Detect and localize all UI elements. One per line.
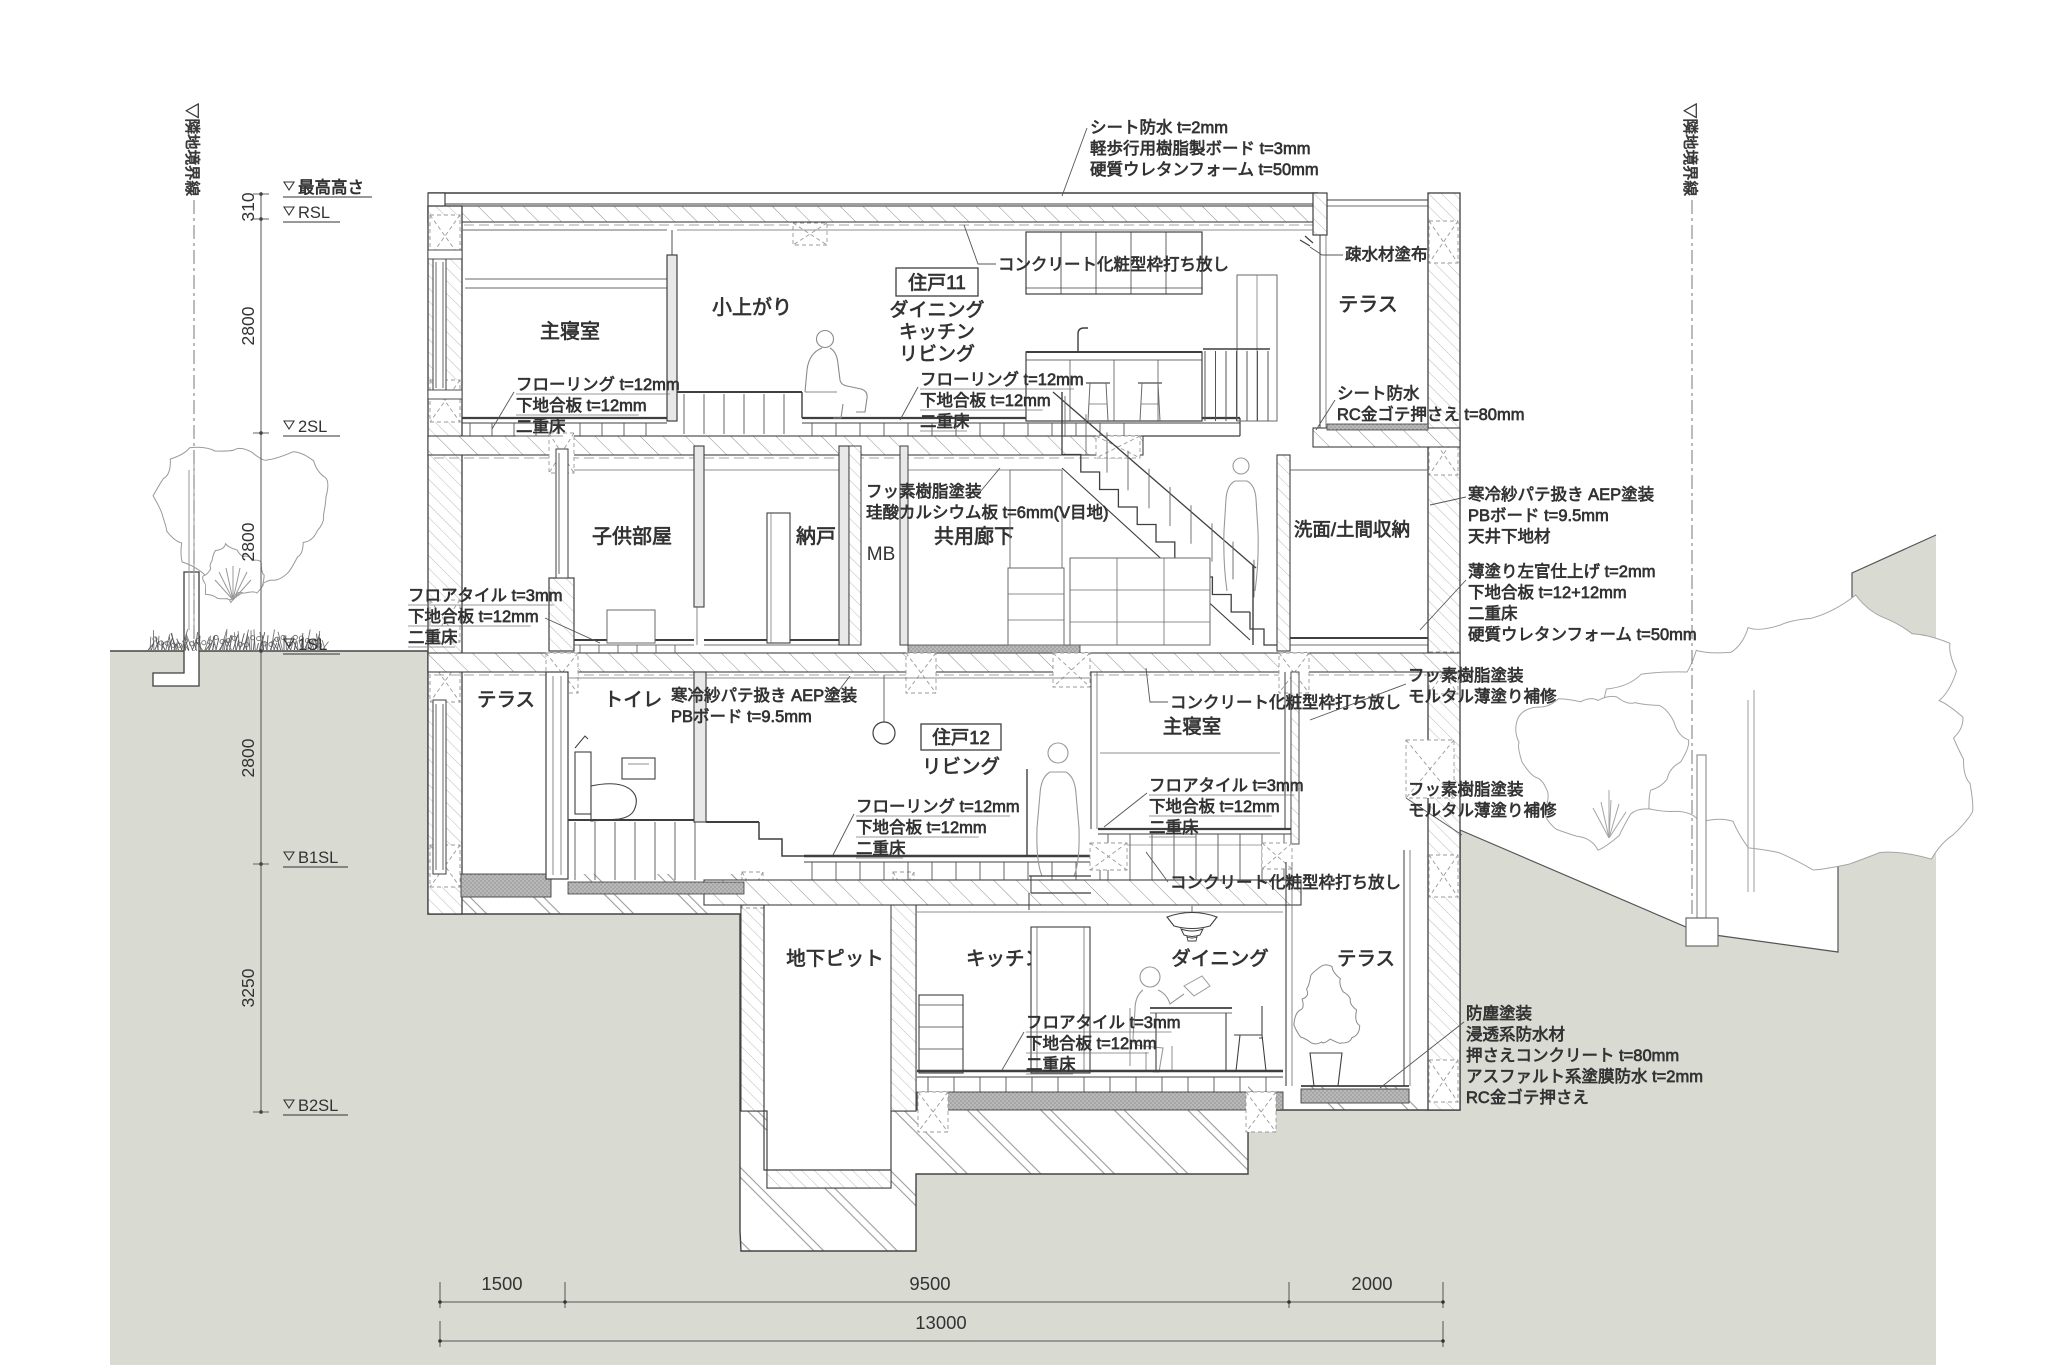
svg-text:テラス: テラス [1338, 294, 1398, 316]
svg-text:2800: 2800 [238, 306, 258, 345]
svg-text:リビング: リビング [899, 343, 975, 365]
svg-text:3250: 3250 [238, 968, 258, 1007]
svg-text:住戸11: 住戸11 [908, 272, 966, 294]
svg-text:寒冷紗パテ扱き AEP塗装: 寒冷紗パテ扱き AEP塗装 [671, 686, 857, 705]
svg-text:洗面/土間収納: 洗面/土間収納 [1294, 519, 1410, 540]
svg-text:コンクリート化粧型枠打ち放し: コンクリート化粧型枠打ち放し [1170, 693, 1401, 712]
svg-text:コンクリート化粧型枠打ち放し: コンクリート化粧型枠打ち放し [1170, 873, 1401, 892]
svg-text:下地合板 t=12mm: 下地合板 t=12mm [516, 396, 647, 415]
svg-text:子供部屋: 子供部屋 [592, 525, 672, 548]
svg-text:二重床: 二重床 [408, 628, 458, 647]
svg-text:疎水材塗布: 疎水材塗布 [1345, 245, 1428, 264]
svg-text:二重床: 二重床 [856, 839, 906, 858]
svg-text:防塵塗装: 防塵塗装 [1466, 1004, 1532, 1023]
svg-text:2000: 2000 [1351, 1273, 1392, 1294]
svg-text:リビング: リビング [922, 756, 1000, 778]
svg-text:コンクリート化粧型枠打ち放し: コンクリート化粧型枠打ち放し [998, 255, 1229, 274]
svg-text:1SL: 1SL [298, 636, 327, 654]
svg-text:2SL: 2SL [298, 418, 327, 436]
svg-text:下地合板 t=12+12mm: 下地合板 t=12+12mm [1468, 583, 1627, 602]
svg-text:RSL: RSL [298, 204, 330, 222]
svg-text:フロアタイル t=3mm: フロアタイル t=3mm [1149, 776, 1303, 795]
svg-text:珪酸カルシウム板 t=6mm(V目地): 珪酸カルシウム板 t=6mm(V目地) [866, 503, 1108, 522]
svg-text:押さえコンクリート t=80mm: 押さえコンクリート t=80mm [1466, 1046, 1679, 1065]
svg-text:フローリング t=12mm: フローリング t=12mm [856, 797, 1020, 816]
svg-text:二重床: 二重床 [516, 417, 566, 436]
svg-text:小上がり: 小上がり [712, 296, 792, 319]
svg-text:下地合板 t=12mm: 下地合板 t=12mm [408, 607, 539, 626]
svg-text:二重床: 二重床 [1026, 1055, 1076, 1074]
svg-text:下地合板 t=12mm: 下地合板 t=12mm [856, 818, 987, 837]
svg-text:浸透系防水材: 浸透系防水材 [1466, 1025, 1565, 1044]
svg-text:最高高さ: 最高高さ [298, 178, 364, 197]
svg-text:フッ素樹脂塗装: フッ素樹脂塗装 [1408, 666, 1524, 685]
svg-text:薄塗り左官仕上げ t=2mm: 薄塗り左官仕上げ t=2mm [1468, 562, 1655, 581]
svg-text:下地合板 t=12mm: 下地合板 t=12mm [920, 391, 1051, 410]
svg-text:RC金ゴテ押さえ t=80mm: RC金ゴテ押さえ t=80mm [1337, 404, 1524, 424]
svg-text:シート防水 t=2mm: シート防水 t=2mm [1090, 118, 1228, 137]
svg-text:二重床: 二重床 [1149, 818, 1199, 837]
svg-text:2800: 2800 [238, 738, 258, 777]
svg-text:下地合板 t=12mm: 下地合板 t=12mm [1149, 797, 1280, 816]
svg-text:下地合板 t=12mm: 下地合板 t=12mm [1026, 1034, 1157, 1053]
svg-text:310: 310 [238, 192, 258, 221]
svg-text:住戸12: 住戸12 [932, 727, 990, 748]
svg-text:地下ピット: 地下ピット [786, 948, 884, 970]
svg-text:寒冷紗パテ扱き AEP塗装: 寒冷紗パテ扱き AEP塗装 [1468, 485, 1654, 504]
svg-text:硬質ウレタンフォーム t=50mm: 硬質ウレタンフォーム t=50mm [1468, 625, 1697, 644]
svg-text:二重床: 二重床 [1468, 604, 1518, 623]
svg-text:13000: 13000 [915, 1312, 966, 1333]
svg-text:二重床: 二重床 [920, 412, 970, 431]
svg-text:天井下地材: 天井下地材 [1468, 527, 1551, 546]
svg-text:1500: 1500 [481, 1273, 522, 1294]
svg-text:PBボード t=9.5mm: PBボード t=9.5mm [671, 707, 812, 726]
svg-text:モルタル薄塗り補修: モルタル薄塗り補修 [1408, 801, 1557, 820]
svg-text:主寝室: 主寝室 [1163, 716, 1222, 738]
svg-text:トイレ: トイレ [604, 689, 663, 711]
svg-text:テラス: テラス [1337, 948, 1395, 970]
svg-text:軽歩行用樹脂製ボード t=3mm: 軽歩行用樹脂製ボード t=3mm [1090, 139, 1310, 158]
svg-text:ダイニング: ダイニング [889, 299, 984, 321]
svg-text:キッチン: キッチン [899, 322, 975, 343]
svg-text:RC金ゴテ押さえ: RC金ゴテ押さえ [1466, 1087, 1589, 1107]
svg-text:モルタル薄塗り補修: モルタル薄塗り補修 [1408, 687, 1557, 706]
svg-text:MB: MB [867, 544, 896, 565]
svg-text:フローリング t=12mm: フローリング t=12mm [516, 375, 680, 394]
svg-text:フッ素樹脂塗装: フッ素樹脂塗装 [866, 482, 982, 501]
svg-text:フロアタイル t=3mm: フロアタイル t=3mm [408, 586, 562, 605]
svg-text:シート防水: シート防水 [1337, 384, 1420, 403]
svg-text:テラス: テラス [477, 689, 535, 711]
svg-text:PBボード t=9.5mm: PBボード t=9.5mm [1468, 506, 1609, 525]
svg-text:ダイニング: ダイニング [1171, 948, 1269, 970]
svg-text:▽隣地境界線: ▽隣地境界線 [183, 103, 201, 197]
svg-text:2800: 2800 [238, 522, 258, 561]
svg-text:フロアタイル t=3mm: フロアタイル t=3mm [1026, 1013, 1180, 1032]
svg-text:共用廊下: 共用廊下 [934, 525, 1014, 548]
svg-text:フローリング t=12mm: フローリング t=12mm [920, 370, 1084, 389]
svg-text:▽隣地境界線: ▽隣地境界線 [1681, 103, 1699, 197]
svg-text:納戸: 納戸 [796, 525, 836, 548]
svg-text:主寝室: 主寝室 [540, 320, 600, 343]
svg-text:硬質ウレタンフォーム t=50mm: 硬質ウレタンフォーム t=50mm [1090, 160, 1319, 179]
svg-text:フッ素樹脂塗装: フッ素樹脂塗装 [1408, 780, 1524, 799]
svg-text:アスファルト系塗膜防水 t=2mm: アスファルト系塗膜防水 t=2mm [1466, 1067, 1703, 1086]
svg-text:B2SL: B2SL [298, 1097, 338, 1115]
svg-text:9500: 9500 [909, 1273, 950, 1294]
svg-text:B1SL: B1SL [298, 849, 338, 867]
